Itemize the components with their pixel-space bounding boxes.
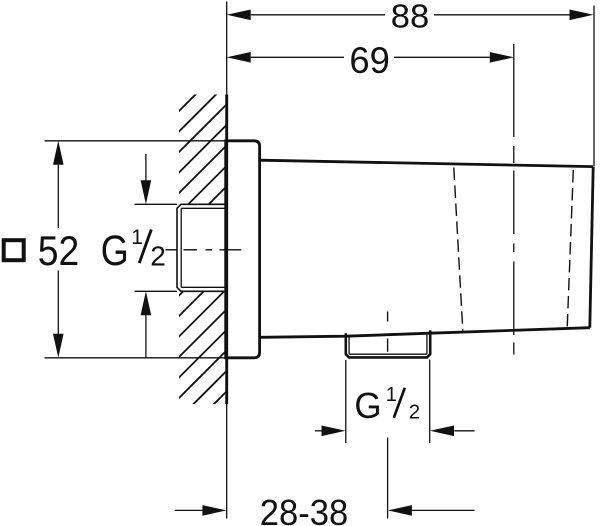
- svg-text:69: 69: [349, 40, 390, 81]
- svg-text:2: 2: [150, 241, 166, 272]
- svg-text:52: 52: [38, 227, 80, 274]
- svg-text:28-38: 28-38: [260, 492, 349, 526]
- svg-text:G: G: [101, 228, 129, 275]
- svg-text:1: 1: [386, 384, 397, 406]
- svg-text:G: G: [354, 385, 381, 426]
- svg-text:1: 1: [131, 226, 143, 249]
- svg-text:88: 88: [391, 0, 430, 36]
- svg-text:2: 2: [409, 400, 420, 423]
